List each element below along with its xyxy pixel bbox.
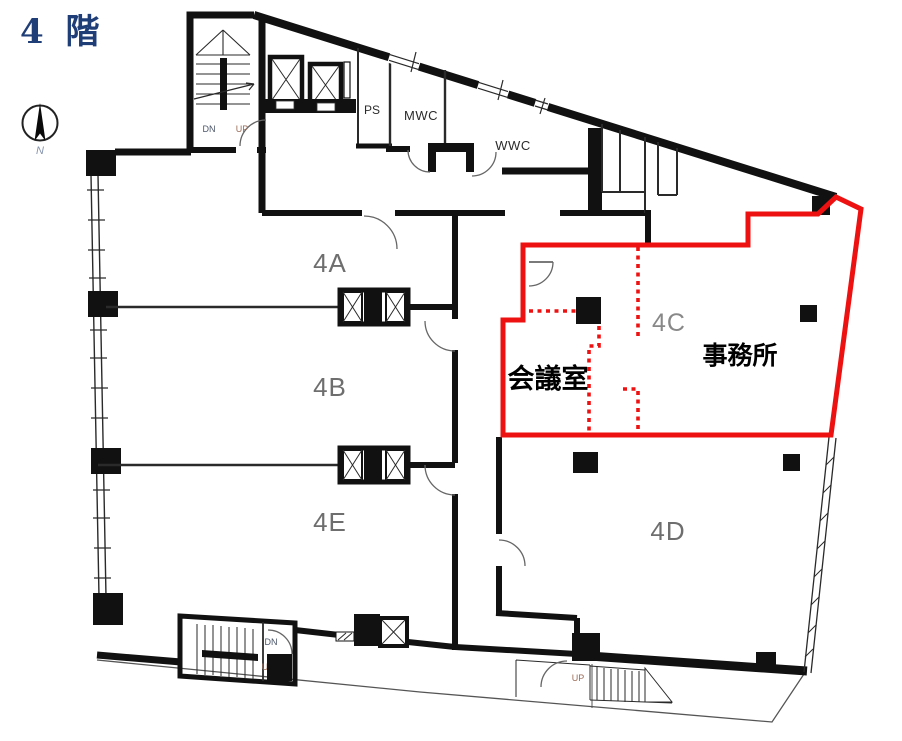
wwc-door-arc [472, 152, 496, 176]
wwc-label: WWC [495, 138, 530, 153]
bottom-elevator [336, 614, 407, 646]
office-label: 事務所 [702, 341, 777, 370]
exterior-stair-up-label: UP [572, 673, 585, 683]
unit-4a-label: 4A [313, 248, 347, 278]
shaft-4a4b [340, 290, 408, 324]
compass: N [23, 103, 58, 157]
mwc-door-arc [408, 150, 430, 172]
column [783, 454, 800, 471]
terrace-outline: UP [97, 660, 806, 722]
compass-north-label: N [36, 145, 44, 157]
top-elevators [264, 57, 356, 113]
column [576, 297, 601, 324]
column [91, 448, 121, 474]
column [93, 593, 123, 625]
unit-4d-label: 4D [650, 516, 685, 546]
door-4d-arc [499, 540, 525, 566]
meeting-room-label: 会議室 [508, 363, 589, 395]
column [800, 305, 817, 322]
exterior-stair: UP [516, 660, 672, 703]
floor-plan-svg: N UP [0, 0, 902, 741]
column [573, 452, 598, 473]
wwc-right-block [588, 128, 602, 214]
unit-4c-label: 4C [652, 309, 686, 337]
wall-4d-west [496, 437, 577, 653]
highlight-door-arc [529, 262, 553, 286]
top-stair-dn-label: DN [203, 124, 216, 134]
door-4e-arc [425, 465, 455, 495]
column [88, 291, 118, 317]
top-stair-interior: DN UP [194, 30, 254, 134]
left-window-wall [87, 175, 111, 597]
column [86, 150, 116, 176]
bottom-wall-mid2 [408, 642, 577, 654]
hall-door-arc [364, 216, 397, 249]
floor-plan-page: 4 階 N UP [0, 0, 902, 741]
ps-label: PS [364, 103, 380, 117]
door-4b-arc [425, 321, 455, 351]
column [572, 633, 600, 661]
unit-4b-label: 4B [313, 372, 347, 402]
dotted-partition-4 [623, 389, 638, 433]
column [756, 652, 776, 667]
top-stair-up-label: UP [236, 124, 249, 134]
shaft-4b4e [340, 448, 408, 482]
column [267, 654, 292, 681]
unit-4e-label: 4E [313, 507, 347, 537]
right-hatched-wall [804, 437, 836, 673]
wc-vestibule [408, 143, 496, 176]
bottom-stair-dn-label: DN [265, 637, 278, 647]
terrace-edge [97, 660, 806, 722]
dotted-partition-2 [589, 326, 599, 433]
mwc-label: MWC [404, 108, 438, 123]
